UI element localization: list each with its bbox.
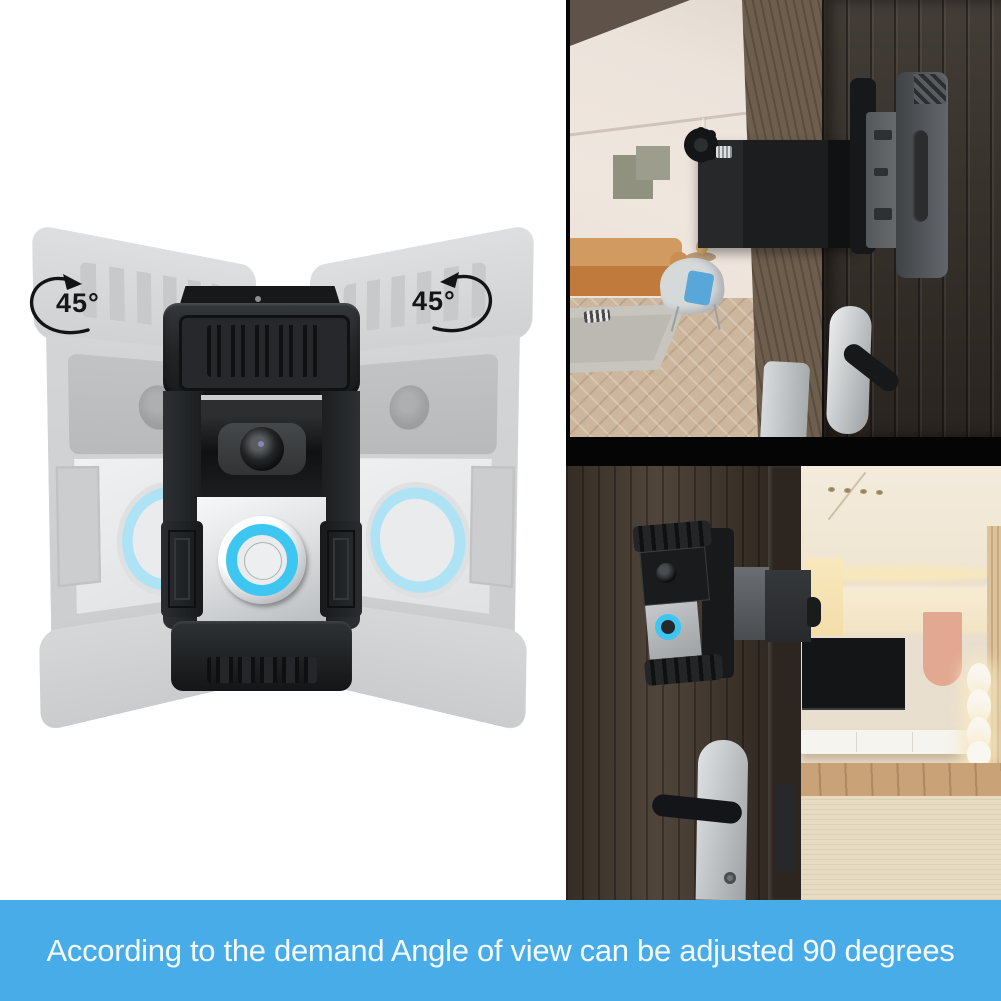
clamp-block-dark — [765, 570, 811, 642]
ghost-camera-lens — [389, 384, 430, 430]
faceplate — [645, 601, 702, 661]
installed-doorbell — [632, 520, 724, 686]
doorbell-button-ring — [226, 524, 298, 596]
pink-arch-decor — [923, 612, 962, 686]
spotlight — [860, 489, 867, 494]
blue-cloth — [683, 270, 714, 306]
product-image-canvas: 45° 45° — [0, 0, 1001, 1001]
screw-shaft — [716, 146, 732, 158]
side-clamp-right — [320, 521, 362, 617]
camera-panel — [639, 546, 709, 606]
ceiling-shadow — [570, 0, 690, 46]
ceiling — [766, 466, 1001, 578]
photo-bottom-door-installed — [566, 466, 1001, 900]
floor-lamp — [965, 663, 993, 779]
angle-diagram-panel: 45° 45° — [0, 0, 566, 900]
rotate-clockwise-arrow-icon — [426, 272, 498, 336]
camera-lens — [655, 562, 677, 584]
caption-text: According to the demand Angle of view ca… — [47, 933, 955, 969]
bracket-top-cap — [163, 303, 360, 397]
doorbell-button — [218, 516, 306, 604]
faceplate — [197, 497, 326, 624]
photo-divider — [566, 437, 1001, 466]
thumbscrew-knob — [807, 597, 821, 627]
rotate-counterclockwise-arrow-icon — [24, 274, 96, 338]
floating-console — [800, 730, 972, 754]
bracket-bottom-cap — [171, 621, 352, 691]
doorbell-button-ring — [654, 613, 682, 641]
camera-lens — [240, 427, 284, 471]
doorbell-device — [163, 303, 360, 691]
mount-screw-hole — [255, 296, 261, 302]
side-clamp-left — [161, 521, 203, 617]
photo-top-door-clamp — [570, 0, 1001, 437]
spotlight — [828, 487, 835, 492]
spotlight — [876, 490, 883, 495]
wall-art — [636, 146, 670, 180]
top-cap-ribs — [207, 325, 319, 377]
beige-rug — [768, 796, 1001, 900]
caption-banner: According to the demand Angle of view ca… — [0, 900, 1001, 1001]
bottom-cap-ribs — [207, 657, 317, 683]
door-latch — [775, 783, 795, 871]
lens-housing — [218, 423, 306, 475]
photo-column — [566, 0, 1001, 900]
ghost-button-ring — [370, 486, 467, 599]
wall-tv — [802, 638, 905, 710]
door-handle-edge-view — [760, 361, 810, 437]
spotlight — [844, 488, 851, 493]
camera-panel — [201, 395, 322, 499]
keyhole — [724, 872, 736, 884]
